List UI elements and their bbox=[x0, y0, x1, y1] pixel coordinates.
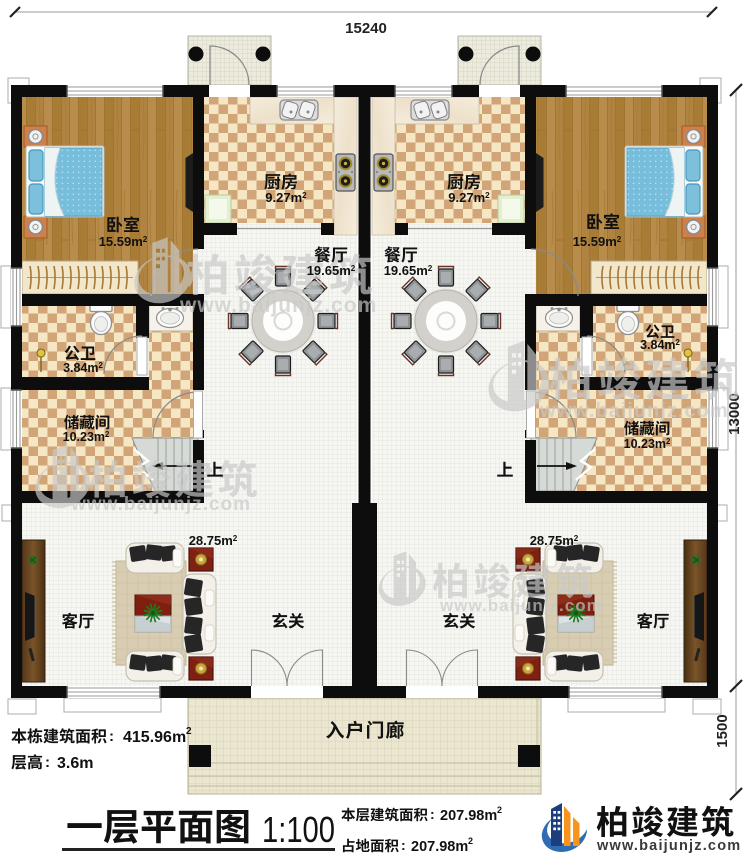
svg-text:19.65m2: 19.65m2 bbox=[307, 263, 356, 278]
svg-text:15.59m2: 15.59m2 bbox=[573, 234, 622, 249]
svg-text:10.23m2: 10.23m2 bbox=[63, 430, 110, 444]
svg-text:www.baijunjz.com: www.baijunjz.com bbox=[439, 596, 603, 615]
svg-text:www.baijunjz.com: www.baijunjz.com bbox=[179, 294, 377, 317]
svg-text:207.98m: 207.98m bbox=[411, 839, 468, 855]
svg-text::: : bbox=[45, 754, 50, 771]
svg-text:9.27m2: 9.27m2 bbox=[265, 190, 307, 205]
svg-text::: : bbox=[401, 837, 406, 853]
svg-text:www.baijunjz.com: www.baijunjz.com bbox=[539, 400, 729, 422]
svg-text:28.75m2: 28.75m2 bbox=[530, 533, 579, 548]
svg-text:3.84m2: 3.84m2 bbox=[63, 361, 103, 375]
svg-text:28.75m2: 28.75m2 bbox=[189, 533, 238, 548]
svg-text:2: 2 bbox=[468, 836, 473, 846]
svg-text:1:100: 1:100 bbox=[262, 809, 335, 850]
svg-text:2: 2 bbox=[497, 805, 502, 815]
svg-text:207.98m: 207.98m bbox=[440, 808, 497, 824]
svg-text:2: 2 bbox=[186, 726, 192, 737]
svg-text:19.65m2: 19.65m2 bbox=[384, 263, 433, 278]
svg-text:15240: 15240 bbox=[345, 20, 387, 37]
svg-text:www.baijunjz.com: www.baijunjz.com bbox=[596, 838, 741, 854]
svg-text:415.96m: 415.96m bbox=[123, 729, 186, 746]
svg-text:www.baijunjz.com: www.baijunjz.com bbox=[70, 494, 251, 515]
svg-text:3.84m2: 3.84m2 bbox=[640, 338, 680, 352]
svg-text:15.59m2: 15.59m2 bbox=[99, 234, 148, 249]
svg-text:1500: 1500 bbox=[714, 714, 731, 747]
svg-text:10.23m2: 10.23m2 bbox=[624, 437, 671, 451]
svg-text:9.27m2: 9.27m2 bbox=[448, 190, 490, 205]
svg-text::: : bbox=[430, 806, 435, 822]
svg-text::: : bbox=[109, 728, 114, 745]
svg-text:3.6m: 3.6m bbox=[57, 755, 93, 772]
